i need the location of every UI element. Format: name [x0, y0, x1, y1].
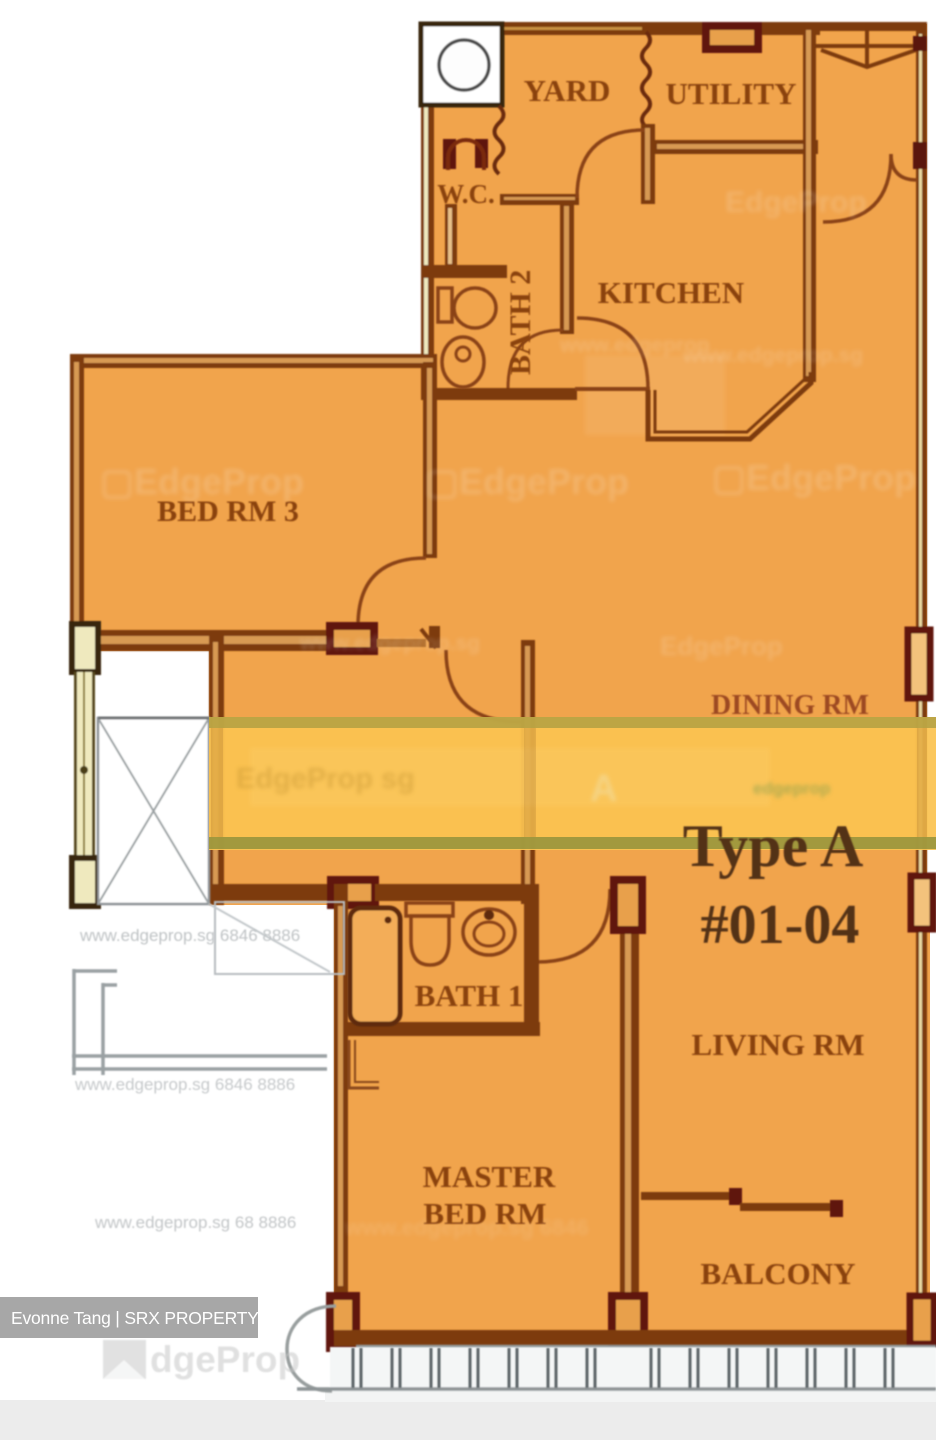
svg-text:EdgeProp sg: EdgeProp sg: [236, 763, 415, 795]
svg-text:Evonne Tang | SRX PROPERTY: Evonne Tang | SRX PROPERTY: [11, 1308, 259, 1328]
svg-text:www.edgeprop.sg 6846 8886: www.edgeprop.sg 6846 8886: [74, 1075, 295, 1094]
svg-text:edgeprop: edgeprop: [753, 779, 830, 798]
svg-text:▢EdgeProp: ▢EdgeProp: [100, 461, 304, 502]
svg-text:EdgeProp: EdgeProp: [725, 186, 867, 219]
svg-text:dgeProp: dgeProp: [150, 1339, 300, 1380]
svg-text:#01-04: #01-04: [701, 894, 860, 956]
svg-text:W.C.: W.C.: [437, 179, 495, 209]
svg-text:www.edgeprop: www.edgeprop: [559, 334, 710, 357]
svg-text:Type A: Type A: [683, 813, 864, 879]
svg-text:MASTER: MASTER: [423, 1159, 556, 1194]
svg-text:www.edgeprop.sg: www.edgeprop.sg: [299, 632, 480, 655]
svg-text:BATH 1: BATH 1: [415, 978, 524, 1013]
svg-text:YARD: YARD: [524, 73, 611, 108]
svg-text:www.edgeprop.sg 6846: www.edgeprop.sg 6846: [344, 1215, 589, 1240]
svg-text:DINING RM: DINING RM: [711, 690, 869, 721]
svg-text:www.edgeprop.sg 6846 8886: www.edgeprop.sg 6846 8886: [79, 926, 300, 945]
svg-text:BATH 2: BATH 2: [504, 270, 537, 375]
svg-text:LIVING RM: LIVING RM: [691, 1027, 864, 1062]
svg-text:UTILITY: UTILITY: [666, 76, 797, 111]
svg-text:▢EdgeProp: ▢EdgeProp: [712, 457, 916, 498]
svg-text:EdgeProp: EdgeProp: [660, 631, 783, 661]
svg-text:A: A: [590, 768, 617, 810]
svg-text:www.edgeprop.sg 68 8886: www.edgeprop.sg 68 8886: [94, 1213, 296, 1232]
svg-text:▢EdgeProp: ▢EdgeProp: [425, 461, 629, 502]
svg-text:KITCHEN: KITCHEN: [598, 275, 744, 310]
svg-text:BALCONY: BALCONY: [700, 1256, 855, 1291]
